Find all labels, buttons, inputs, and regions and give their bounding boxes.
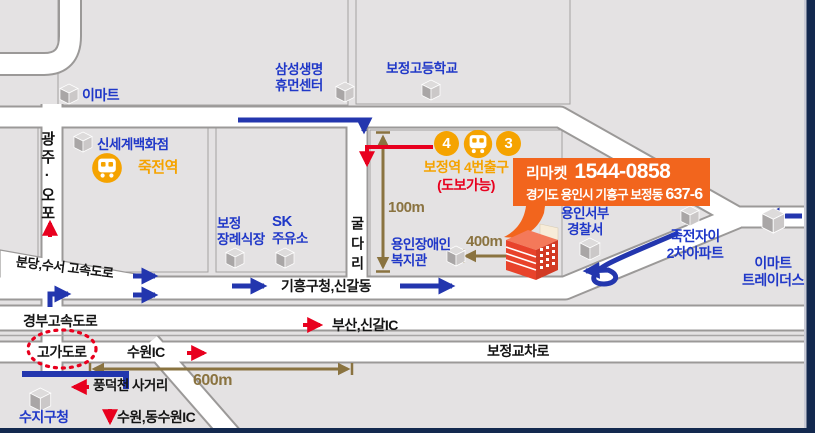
building-icon-suji-office: [30, 388, 51, 411]
label-police: 용인서부 경찰서: [549, 206, 621, 238]
map-canvas: 이마트 삼성생명 휴먼센터 보정고등학교 광주·오포 신세계백화점 죽전역 보정…: [0, 0, 815, 433]
building-icon-police: [580, 238, 600, 260]
subway-icon-bojeong: [464, 130, 492, 158]
label-pungdeokcheon: 풍덕천 사거리: [93, 378, 168, 394]
store-phone: 1544-0858: [574, 160, 670, 183]
label-sk-gas: SK 주유소: [272, 213, 308, 247]
label-walkable: (도보가능): [408, 177, 524, 194]
label-suji-office: 수지구청: [19, 409, 69, 426]
label-emart-traders: 이마트 트레이더스: [728, 255, 815, 288]
store-address: 경기도 용인시 기흥구 보정동637-6: [526, 184, 710, 204]
label-gyeongbu-expwy: 경부고속도로: [23, 313, 97, 330]
label-guldari: 굴다리: [349, 216, 366, 278]
label-gwangju-opo: 광주·오포: [38, 131, 56, 223]
label-bojeong-funeral: 보정 장례식장: [217, 216, 265, 248]
label-600m: 600m: [193, 372, 232, 391]
station-exit-badge-3: 3: [496, 131, 521, 156]
label-emart: 이마트: [82, 87, 119, 104]
label-bojeong-exit: 보정역 4번출구: [408, 159, 524, 176]
label-suwon-dongsuwon-ic: 수원,동수원IC: [117, 409, 195, 426]
label-shinsegae: 신세계백화점: [97, 137, 169, 153]
building-icon-bojeong-high: [422, 80, 440, 100]
label-jukjeon-station: 죽전역: [138, 159, 178, 177]
label-yongin-welfare: 용인장애인 복지관: [391, 237, 451, 269]
label-400m: 400m: [466, 233, 502, 251]
building-icon-emart-traders: [762, 208, 785, 233]
callout-box: 리마켓1544-0858 경기도 용인시 기흥구 보정동637-6: [513, 158, 710, 206]
label-busan-singal-ic: 부산,신갈IC: [332, 317, 398, 334]
label-samsung-life: 삼성생명 휴먼센터: [260, 62, 338, 94]
label-overpass: 고가도로: [37, 344, 87, 361]
label-suwon-ic: 수원IC: [127, 344, 165, 361]
store-name: 리마켓: [526, 165, 567, 182]
label-bojeong-high-school: 보정고등학교: [386, 61, 458, 77]
building-icon-sk-gas: [276, 248, 294, 268]
station-exit-badge-4: 4: [434, 131, 459, 156]
building-icon-jukjeon-xi: [681, 206, 699, 226]
label-jukjeon-xi: 죽전자이 2차아파트: [653, 228, 737, 261]
building-icon-shinsegae: [74, 132, 92, 152]
callout-title: 리마켓1544-0858: [526, 160, 710, 184]
building-icon-emart: [60, 84, 78, 104]
building-icon-samsung-life: [336, 82, 354, 102]
building-icon-funeral: [226, 248, 244, 268]
label-giheung-singal: 기흥구청,신갈동: [281, 278, 371, 295]
subway-icon-jukjeon: [92, 153, 122, 183]
label-bojeong-crossing: 보정교차로: [487, 343, 549, 360]
label-100m: 100m: [388, 199, 424, 217]
